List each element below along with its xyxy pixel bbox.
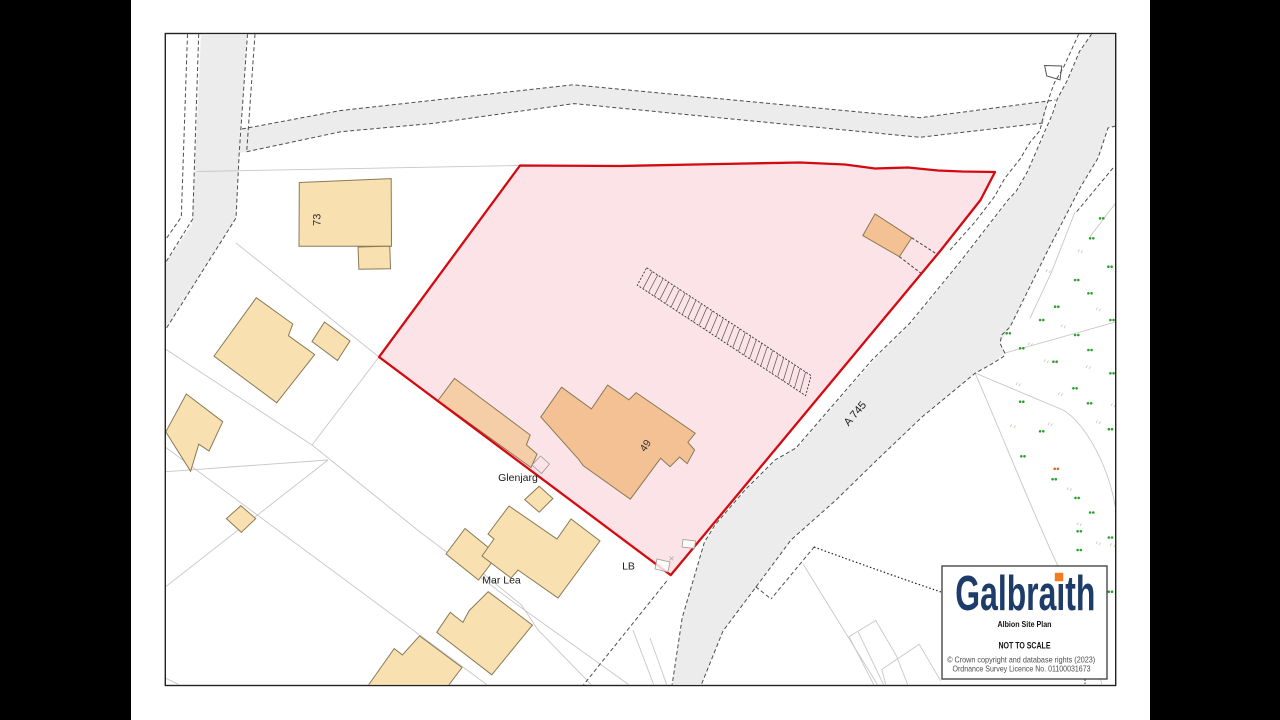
svg-text:Albion Site Plan: Albion Site Plan — [998, 620, 1052, 629]
svg-text:Ordnance Survey Licence No. 01: Ordnance Survey Licence No. 01100031673 — [953, 665, 1091, 674]
svg-text:Galbraith: Galbraith — [955, 567, 1095, 621]
svg-text:Glenjarg: Glenjarg — [498, 472, 538, 484]
svg-text:NOT TO SCALE: NOT TO SCALE — [999, 641, 1051, 651]
svg-text:Mar Lea: Mar Lea — [482, 575, 521, 587]
svg-text:LB: LB — [622, 561, 635, 573]
svg-text:73: 73 — [312, 214, 324, 226]
svg-text:© Crown copyright and database: © Crown copyright and database rights (2… — [947, 656, 1095, 665]
